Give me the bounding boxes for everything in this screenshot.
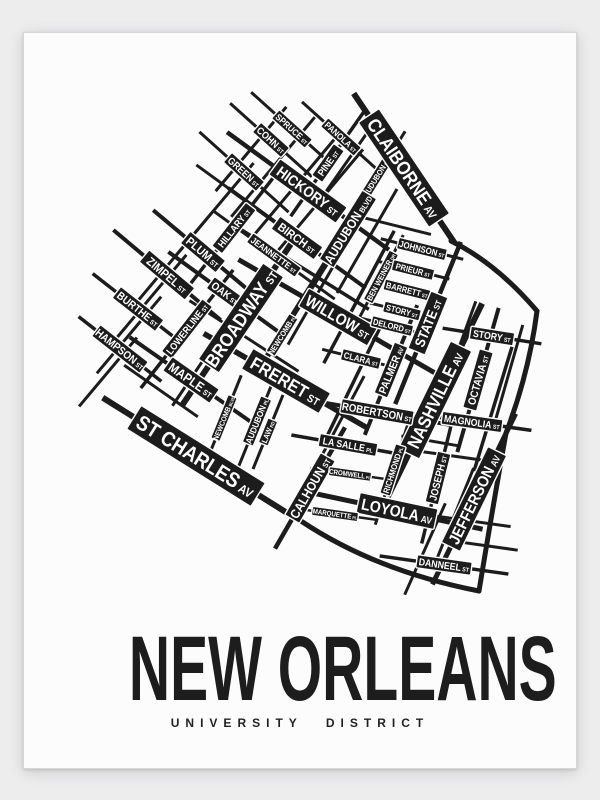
street-label: ST CHARLESAV <box>127 405 266 506</box>
photo-background: { "poster": { "title": "NEW ORLEANS", "s… <box>0 0 600 800</box>
street-label: STATEST <box>408 291 448 355</box>
street-label-text: ST CHARLESAV <box>132 411 260 503</box>
street-label: STORYST <box>469 326 515 346</box>
street-label: HILLARYST <box>212 202 257 254</box>
street-label: JOHNSONST <box>396 237 447 261</box>
street-label: LA SALLEPL <box>318 433 378 456</box>
street-label: PRIEURST <box>391 259 435 280</box>
street-label: STORYST <box>382 301 421 321</box>
street-label: MARQUETTEPL <box>311 506 358 522</box>
street-label: ZIMPELST <box>139 250 195 301</box>
street-label: DANNEELST <box>416 555 473 576</box>
poster: SPRUCESTPANOLASTCOHNSTGREENSTHICKORYSTPI… <box>23 32 577 769</box>
poster-title: NEW ORLEANS <box>129 623 471 715</box>
street-label: FRERETST <box>241 348 331 413</box>
street-label: JOSEPHST <box>425 451 451 505</box>
street-label-text: LOWERLINEST <box>164 301 211 357</box>
title-block: NEW ORLEANS UNIVERSITY DISTRICT <box>24 623 576 730</box>
street-label: CLAIBORNEAV <box>358 109 450 228</box>
street-label: BARRETTST <box>383 279 431 301</box>
district-boundary-line <box>451 241 537 311</box>
street-labels: SPRUCESTPANOLASTCOHNSTGREENSTHICKORYSTPI… <box>92 109 515 576</box>
street-label: CROMWELLPL <box>328 466 372 481</box>
